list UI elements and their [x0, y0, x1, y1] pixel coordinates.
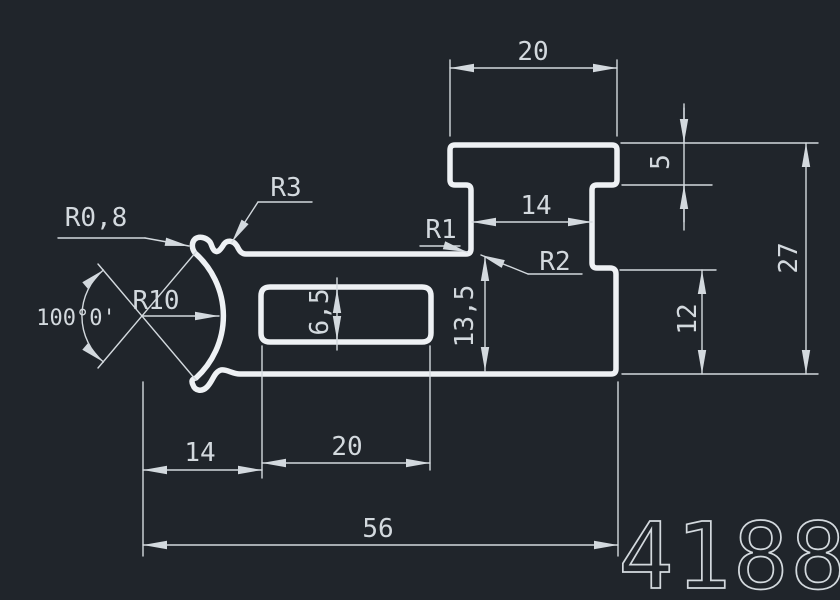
dim-text-crescent-offset: 14 [184, 438, 215, 468]
dim-text-arm-height: 13,5 [450, 285, 480, 348]
cad-drawing: 20 5 14 27 12 13,5 6,5 14 20 56 R0,8 R3 … [0, 0, 840, 600]
dim-text-total-width: 56 [362, 514, 393, 544]
dim-text-slot-height: 6,5 [305, 289, 335, 336]
dim-text-total-height: 27 [774, 242, 804, 273]
dim-text-radius-corner1: R1 [425, 215, 456, 245]
dim-text-cap-width: 20 [517, 37, 548, 67]
dim-text-radius-corner2: R2 [539, 247, 570, 277]
leader-radius-corner2 [481, 255, 528, 274]
dim-text-neck-width: 14 [520, 191, 551, 221]
dim-text-radius-hook: R3 [270, 173, 301, 203]
leader-radius-hook [232, 202, 258, 242]
dim-text-slot-width: 20 [331, 432, 362, 462]
dim-text-step-height: 12 [673, 303, 703, 334]
dim-text-groove-angle: 100°0' [36, 306, 115, 331]
dim-text-radius-tip: R0,8 [65, 203, 128, 233]
part-number: 4188 [618, 503, 840, 600]
dim-text-cap-height: 5 [646, 154, 676, 170]
cad-drawing-canvas: 20 5 14 27 12 13,5 6,5 14 20 56 R0,8 R3 … [0, 0, 840, 600]
slot-cutout [261, 287, 431, 342]
dimension-text-group: 20 5 14 27 12 13,5 6,5 14 20 56 R0,8 R3 … [36, 37, 804, 544]
dim-text-radius-groove: R10 [133, 286, 180, 316]
leader-radius-tip [145, 238, 189, 246]
